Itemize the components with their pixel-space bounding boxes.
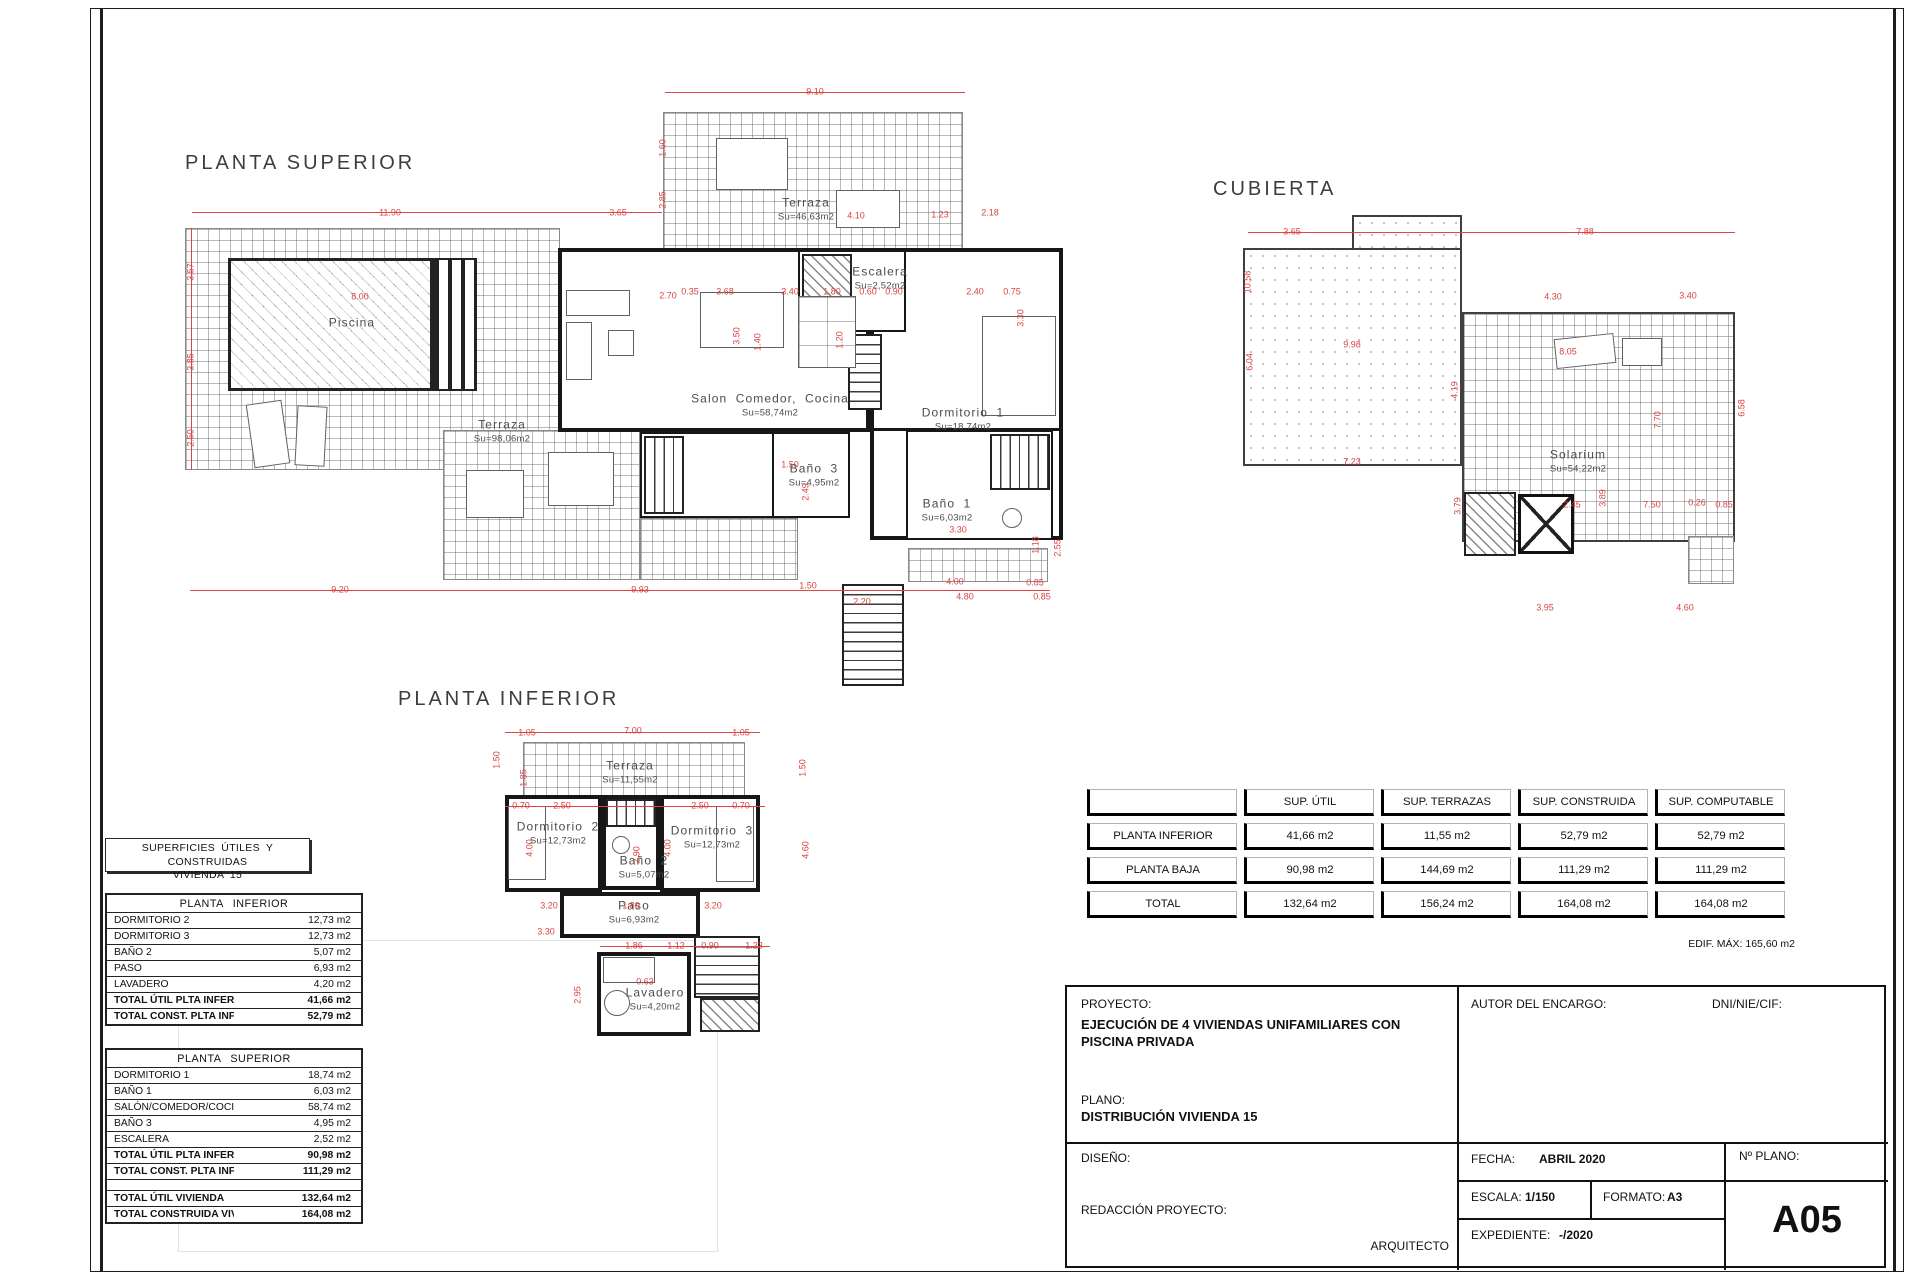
stair-break-hatch [700, 998, 760, 1032]
table-title: PLANTA SUPERIOR [106, 1049, 362, 1068]
room-label-bano2: Baño 2Su=5,07m2 [619, 851, 670, 882]
dimension-line [505, 806, 765, 807]
table-row: BAÑO 25,07 m2 [106, 945, 362, 961]
lower-terrace-tiles-2 [640, 518, 798, 580]
summary-header-computable: SUP. COMPUTABLE [1655, 789, 1785, 816]
fecha-label: FECHA: [1471, 1152, 1515, 1168]
table-row: SALÓN/COMEDOR/COCINA58,74 m2 [106, 1100, 362, 1116]
escala-value: 1/150 [1525, 1190, 1555, 1206]
roof-left [1243, 248, 1462, 466]
title-block-divider [1457, 1218, 1726, 1220]
expediente-label: EXPEDIENTE: [1471, 1228, 1550, 1244]
edif-max-note: EDIF. MÁX: 165,60 m2 [1450, 938, 1795, 950]
expediente-value: -/2020 [1559, 1228, 1593, 1244]
room-label-dormitorio2: Dormitorio 2Su=12,73m2 [517, 817, 600, 848]
summary-table: SUP. ÚTIL SUP. TERRAZAS SUP. CONSTRUIDA … [1080, 782, 1792, 925]
laundry-counter [603, 957, 655, 983]
table-row: DORMITORIO 312,73 m2 [106, 929, 362, 945]
surfaces-title-line2: VIVIENDA 15 [173, 869, 242, 881]
summary-header-util: SUP. ÚTIL [1244, 789, 1374, 816]
room-label-dormitorio1: Dormitorio 1Su=18,74m2 [922, 403, 1005, 434]
table-row: DORMITORIO 212,73 m2 [106, 913, 362, 929]
table-row: TOTAL ÚTIL VIVIENDA132,64 m2 [106, 1191, 362, 1207]
dni-label: DNI/NIE/CIF: [1712, 997, 1782, 1013]
table-row: BAÑO 34,95 m2 [106, 1116, 362, 1132]
bed-dorm1 [982, 316, 1056, 416]
table-row: ESCALERA2,52 m2 [106, 1132, 362, 1148]
heading-planta-superior: PLANTA SUPERIOR [185, 152, 415, 175]
exterior-stair [842, 584, 904, 686]
room-label-terraza-sup: TerrazaSu=46,63m2 [778, 193, 834, 224]
dimension-line [1248, 232, 1735, 233]
skylight-shaft [1518, 494, 1574, 554]
title-block-divider [1457, 987, 1459, 1142]
proyecto-value: EJECUCIÓN DE 4 VIVIENDAS UNIFAMILIARES C… [1081, 1017, 1443, 1051]
room-label-bano1: Baño 1Su=6,03m2 [922, 494, 973, 525]
sofa [566, 322, 592, 380]
table-row: LAVADERO4,20 m2 [106, 977, 362, 993]
autor-label: AUTOR DEL ENCARGO: [1471, 997, 1606, 1013]
sheet-frame-inner-right [1893, 8, 1896, 1272]
sofa [566, 290, 630, 316]
arquitecto-label: ARQUITECTO [1349, 1239, 1449, 1255]
side-terrace-tiles [908, 548, 1048, 582]
title-block: PROYECTO: EJECUCIÓN DE 4 VIVIENDAS UNIFA… [1065, 985, 1886, 1268]
solarium-tiles-corner [1688, 536, 1734, 584]
pool-lane-steps [433, 258, 477, 391]
room-label-lavadero: LavaderoSu=4,20m2 [626, 983, 685, 1014]
drawing-sheet: PLANTA SUPERIOR CUBIERTA PLANTA INFERIOR… [0, 0, 1920, 1280]
diseno-label: DISEÑO: [1081, 1151, 1130, 1167]
proyecto-label: PROYECTO: [1081, 997, 1151, 1013]
room-label-paso: PasoSu=6,93m2 [609, 896, 660, 927]
terrace-dining-set [466, 470, 524, 518]
shower-hatch [606, 799, 656, 827]
dimension-line [665, 92, 965, 93]
nplano-label: Nº PLANO: [1739, 1149, 1799, 1165]
surfaces-title-box: SUPERFICIES ÚTILES Y CONSTRUIDAS VIVIEND… [105, 838, 310, 872]
surfaces-title-line1: SUPERFICIES ÚTILES Y CONSTRUIDAS [142, 842, 273, 868]
room-label-piscina: Piscina [329, 312, 375, 331]
summary-header-row: SUP. ÚTIL SUP. TERRAZAS SUP. CONSTRUIDA … [1087, 789, 1785, 816]
redaccion-label: REDACCIÓN PROYECTO: [1081, 1203, 1227, 1219]
kitchen-units [798, 296, 856, 368]
dimension-line [505, 732, 760, 733]
room-label-solarium: SolariumSu=54,22m2 [1550, 445, 1606, 476]
dimension-line [192, 212, 662, 213]
terrace-table [716, 138, 788, 190]
sun-lounger [1554, 333, 1617, 369]
title-block-divider [1590, 1180, 1592, 1218]
shower-hatch [990, 434, 1050, 490]
table-row: BAÑO 16,03 m2 [106, 1084, 362, 1100]
title-block-divider [1067, 1142, 1888, 1144]
summary-header-empty [1087, 789, 1237, 816]
table-row: PLANTA INFERIOR41,66 m211,55 m252,79 m25… [1087, 823, 1785, 850]
plano-label: PLANO: [1081, 1093, 1125, 1109]
summary-header-construida: SUP. CONSTRUIDA [1518, 789, 1648, 816]
fecha-value: ABRIL 2020 [1539, 1152, 1605, 1168]
title-block-divider [1457, 1142, 1459, 1270]
sheet-frame-inner-left [100, 8, 103, 1272]
dimension-line [191, 228, 192, 470]
room-label-escalera: EscaleraSu=2,52m2 [852, 262, 908, 293]
formato-value: A3 [1667, 1190, 1682, 1206]
room-label-terraza-98: TerrazaSu=98,06m2 [474, 415, 530, 446]
roof-stair-hatch [1464, 492, 1516, 556]
table-row: TOTAL ÚTIL PLTA INFERIOR41,66 m2 [106, 993, 362, 1009]
nplano-value: A05 [1729, 1199, 1885, 1242]
table-planta-superior: PLANTA SUPERIOR DORMITORIO 118,74 m2BAÑO… [105, 1048, 363, 1224]
plano-value: DISTRIBUCIÓN VIVIENDA 15 [1081, 1109, 1258, 1126]
summary-header-terrazas: SUP. TERRAZAS [1381, 789, 1511, 816]
sun-lounger [294, 405, 327, 466]
hall-stair [644, 436, 684, 514]
table-row: TOTAL CONST. PLTA INFERIOR111,29 m2 [106, 1164, 362, 1180]
table-row: TOTAL CONST. PLTA INFERIOR52,79 m2 [106, 1009, 362, 1026]
title-block-divider [1724, 1142, 1726, 1270]
table-row: PASO6,93 m2 [106, 961, 362, 977]
table-row: TOTAL ÚTIL PLTA INFERIOR90,98 m2 [106, 1148, 362, 1164]
heading-planta-inferior: PLANTA INFERIOR [398, 688, 619, 711]
coffee-table [608, 330, 634, 356]
table-row: TOTAL CONSTRUIDA VIVIENDA164,08 m2 [106, 1207, 362, 1224]
heading-cubierta: CUBIERTA [1213, 178, 1336, 201]
room-label-dormitorio3: Dormitorio 3Su=12,73m2 [671, 821, 754, 852]
table-planta-inferior: PLANTA INFERIOR DORMITORIO 212,73 m2DORM… [105, 893, 363, 1026]
dining-table [700, 292, 784, 348]
terrace-dining-set [548, 452, 614, 506]
terrace-planter [836, 190, 900, 228]
table-row: PLANTA BAJA90,98 m2144,69 m2111,29 m2111… [1087, 857, 1785, 884]
toilet [1002, 508, 1022, 528]
dimension-line [600, 946, 770, 947]
side-table [1622, 338, 1662, 366]
escala-label: ESCALA: [1471, 1190, 1522, 1206]
table-row [106, 1180, 362, 1191]
upper-terrace-tiles [663, 112, 963, 252]
title-block-divider [1724, 1180, 1888, 1182]
room-label-terraza-inf: TerrazaSu=11,55m2 [602, 756, 657, 787]
table-title: PLANTA INFERIOR [106, 894, 362, 913]
dimension-line [190, 590, 1050, 591]
table-row: DORMITORIO 118,74 m2 [106, 1068, 362, 1084]
room-label-bano3: Baño 3Su=4,95m2 [789, 459, 840, 490]
room-label-salon: Salon Comedor, CocinaSu=58,74m2 [691, 389, 849, 420]
formato-label: FORMATO: [1603, 1190, 1665, 1206]
table-row: TOTAL132,64 m2156,24 m2164,08 m2164,08 m… [1087, 891, 1785, 918]
